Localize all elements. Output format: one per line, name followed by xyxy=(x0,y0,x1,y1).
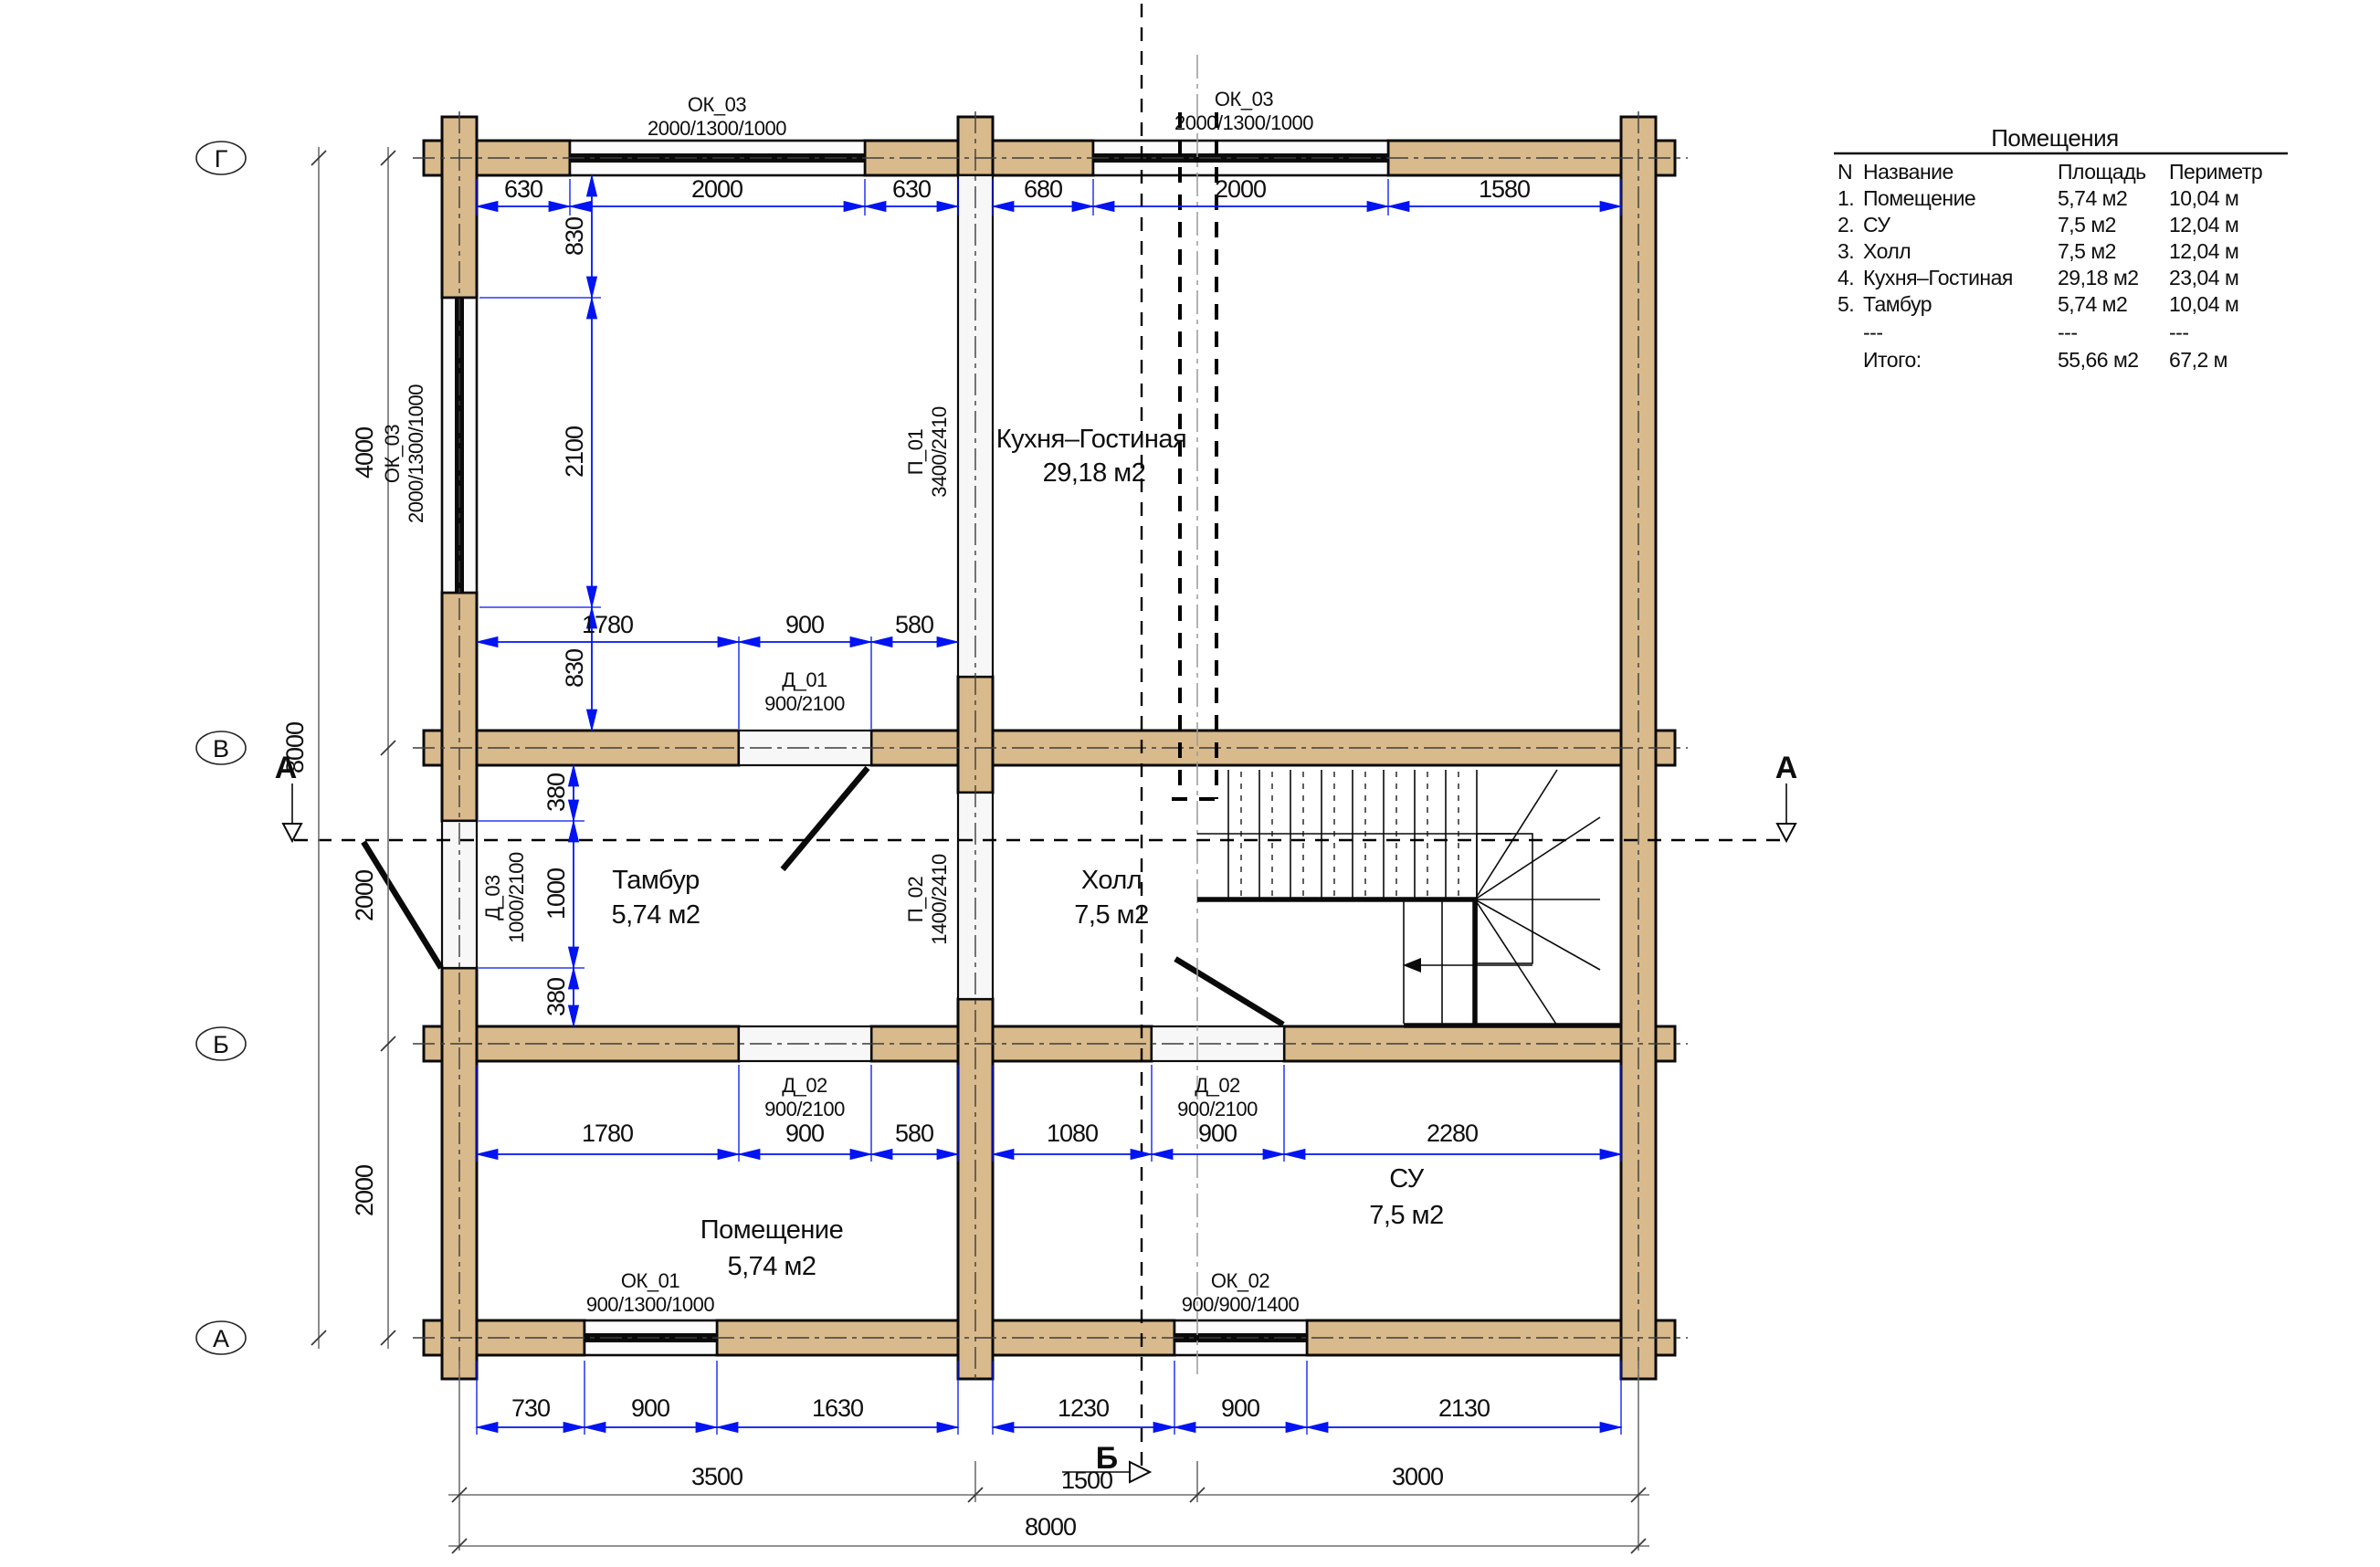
room-labels: Кухня–Гостиная 29,18 м2 Тамбур 5,74 м2 Х… xyxy=(611,425,1443,1281)
axis-bubble-g: Г xyxy=(215,145,228,173)
table-total-name: Итого: xyxy=(1863,348,1922,372)
dim-left-8000: 8000 xyxy=(281,722,309,773)
room-pomeschenie-name: Помещение xyxy=(700,1215,844,1245)
dim-a-2130: 2130 xyxy=(1438,1394,1490,1422)
room-tambur-area: 5,74 м2 xyxy=(611,900,700,930)
dim-left-2000b: 2000 xyxy=(351,1165,378,1216)
axis-bubbles: Г В Б А xyxy=(196,142,246,1354)
label-ok01-code: ОК_01 xyxy=(621,1269,679,1292)
label-ok03-top-right-size: 2000/1300/1000 xyxy=(1174,111,1313,134)
dim-tambur-1000: 1000 xyxy=(542,868,570,920)
dim-a-900a: 900 xyxy=(631,1394,669,1422)
table-row-4-n: 4. xyxy=(1838,266,1854,289)
label-ok02-size: 900/900/1400 xyxy=(1182,1293,1300,1316)
label-ok01-size: 900/1300/1000 xyxy=(586,1293,715,1316)
dim-v-580: 580 xyxy=(895,611,933,638)
table-row-1-perimeter: 10,04 м xyxy=(2169,186,2238,210)
dim-v-900: 900 xyxy=(785,611,824,638)
room-su-name: СУ xyxy=(1389,1164,1424,1194)
dim-left-2000a: 2000 xyxy=(351,870,378,921)
dim-left-4000: 4000 xyxy=(351,427,378,479)
dim-kitchen-830a: 830 xyxy=(561,217,588,256)
table-separator-perimeter: --- xyxy=(2169,321,2188,344)
table-row-5-perimeter: 10,04 м xyxy=(2169,292,2238,316)
dim-b-1780: 1780 xyxy=(582,1120,633,1147)
label-p01-size: 3400/2410 xyxy=(928,406,951,498)
table-row-5-area: 5,74 м2 xyxy=(2058,292,2127,316)
table-row-4-name: Кухня–Гостиная xyxy=(1863,266,2013,289)
dim-b-1080: 1080 xyxy=(1047,1120,1098,1147)
table-header-name: Название xyxy=(1863,160,1953,184)
room-kitchen-area: 29,18 м2 xyxy=(1043,458,1146,488)
dim-a-900b: 900 xyxy=(1221,1394,1259,1422)
label-p02-size: 1400/2410 xyxy=(928,854,951,945)
staircase xyxy=(1172,112,1621,1025)
table-row-2-n: 2. xyxy=(1838,213,1854,237)
dim-bottom-3000: 3000 xyxy=(1392,1463,1443,1490)
label-ok03-top-left-size: 2000/1300/1000 xyxy=(648,117,786,140)
table-row-1-area: 5,74 м2 xyxy=(2058,186,2127,210)
dim-top-2000a: 2000 xyxy=(691,175,742,203)
room-su-area: 7,5 м2 xyxy=(1369,1201,1443,1230)
dim-b-900a: 900 xyxy=(785,1120,824,1147)
table-row-3-name: Холл xyxy=(1863,239,1911,263)
dimensions-blue: 630 2000 630 680 2000 1580 830 2100 830 … xyxy=(477,175,1621,1435)
table-row-5-n: 5. xyxy=(1838,292,1854,316)
table-total-perimeter: 67,2 м xyxy=(2169,348,2227,372)
dim-kitchen-2100: 2100 xyxy=(561,426,588,478)
floor-plan-drawing: А А Б 630 2000 630 680 2000 1580 xyxy=(0,0,2380,1567)
axis-bubble-a: А xyxy=(213,1325,229,1352)
opening-labels: ОК_03 2000/1300/1000 ОК_03 2000/1300/100… xyxy=(381,88,1313,1316)
section-a-letter-right: А xyxy=(1775,751,1798,785)
table-row-3-area: 7,5 м2 xyxy=(2058,239,2116,263)
dim-top-1580: 1580 xyxy=(1479,175,1530,203)
table-row-2-area: 7,5 м2 xyxy=(2058,213,2116,237)
stair-direction-arrow xyxy=(1403,958,1421,973)
dim-v-1780: 1780 xyxy=(582,611,633,638)
label-ok03-left-size: 2000/1300/1000 xyxy=(405,384,427,523)
label-d02-left-size: 900/2100 xyxy=(764,1098,845,1120)
room-hall-name: Холл xyxy=(1081,866,1142,895)
dim-bottom-3500: 3500 xyxy=(691,1463,742,1490)
table-header-area: Площадь xyxy=(2058,160,2146,184)
table-header-perimeter: Периметр xyxy=(2169,160,2262,184)
dim-b-2280: 2280 xyxy=(1427,1120,1478,1147)
table-title: Помещения xyxy=(1991,124,2119,152)
table-row-1-n: 1. xyxy=(1838,186,1854,210)
dim-kitchen-830b: 830 xyxy=(561,649,588,688)
label-d03-size: 1000/2100 xyxy=(505,852,528,943)
table-row-2-name: СУ xyxy=(1863,213,1890,237)
rooms-table: Помещения N Название Площадь Периметр 1.… xyxy=(1834,124,2288,372)
dim-b-580: 580 xyxy=(895,1120,933,1147)
label-d03-code: Д_03 xyxy=(481,875,504,920)
label-ok03-left-code: ОК_03 xyxy=(381,425,404,483)
dim-a-1230: 1230 xyxy=(1058,1394,1109,1422)
label-d01-code: Д_01 xyxy=(782,668,827,691)
table-row-4-area: 29,18 м2 xyxy=(2058,266,2139,289)
table-total-area: 55,66 м2 xyxy=(2058,348,2139,372)
dim-tambur-380b: 380 xyxy=(542,978,570,1016)
dim-top-2000b: 2000 xyxy=(1215,175,1266,203)
dim-a-1630: 1630 xyxy=(812,1394,863,1422)
table-separator-name: --- xyxy=(1863,321,1882,344)
dim-top-680: 680 xyxy=(1024,175,1062,203)
dim-top-630b: 630 xyxy=(892,175,931,203)
floor-plan-page: А А Б 630 2000 630 680 2000 1580 xyxy=(0,0,2380,1567)
table-separator-area: --- xyxy=(2058,321,2077,344)
label-d02-right-code: Д_02 xyxy=(1195,1074,1240,1097)
label-ok03-top-left-code: ОК_03 xyxy=(688,93,746,116)
dim-bottom-1500: 1500 xyxy=(1061,1467,1112,1494)
table-row-3-perimeter: 12,04 м xyxy=(2169,239,2238,263)
label-ok02-code: ОК_02 xyxy=(1211,1269,1269,1292)
label-d01-size: 900/2100 xyxy=(764,692,845,715)
label-p01-code: П_01 xyxy=(904,428,927,475)
label-ok03-top-right-code: ОК_03 xyxy=(1215,88,1273,110)
axis-lines xyxy=(413,55,1688,1384)
dim-b-900b: 900 xyxy=(1198,1120,1237,1147)
door-d01-swing xyxy=(783,768,868,869)
table-row-1-name: Помещение xyxy=(1863,186,1975,210)
label-d02-right-size: 900/2100 xyxy=(1177,1098,1258,1120)
dim-top-630a: 630 xyxy=(504,175,542,203)
room-pomeschenie-area: 5,74 м2 xyxy=(727,1252,816,1281)
label-p02-code: П_02 xyxy=(904,876,927,922)
axis-bubble-v: В xyxy=(213,735,229,762)
label-d02-left-code: Д_02 xyxy=(782,1074,827,1097)
dim-bottom-8000: 8000 xyxy=(1025,1513,1076,1541)
dim-a-730: 730 xyxy=(511,1394,550,1422)
room-tambur-name: Тамбур xyxy=(612,866,699,895)
table-row-5-name: Тамбур xyxy=(1863,292,1932,316)
table-row-3-n: 3. xyxy=(1838,239,1854,263)
table-header-n: N xyxy=(1838,160,1852,184)
dim-tambur-380a: 380 xyxy=(542,773,570,812)
axis-bubble-b: Б xyxy=(213,1031,229,1058)
table-row-4-perimeter: 23,04 м xyxy=(2169,266,2238,289)
room-kitchen-name: Кухня–Гостиная xyxy=(996,425,1186,454)
door-d02-right-swing xyxy=(1175,959,1283,1025)
table-row-2-perimeter: 12,04 м xyxy=(2169,213,2238,237)
room-hall-area: 7,5 м2 xyxy=(1074,900,1148,930)
